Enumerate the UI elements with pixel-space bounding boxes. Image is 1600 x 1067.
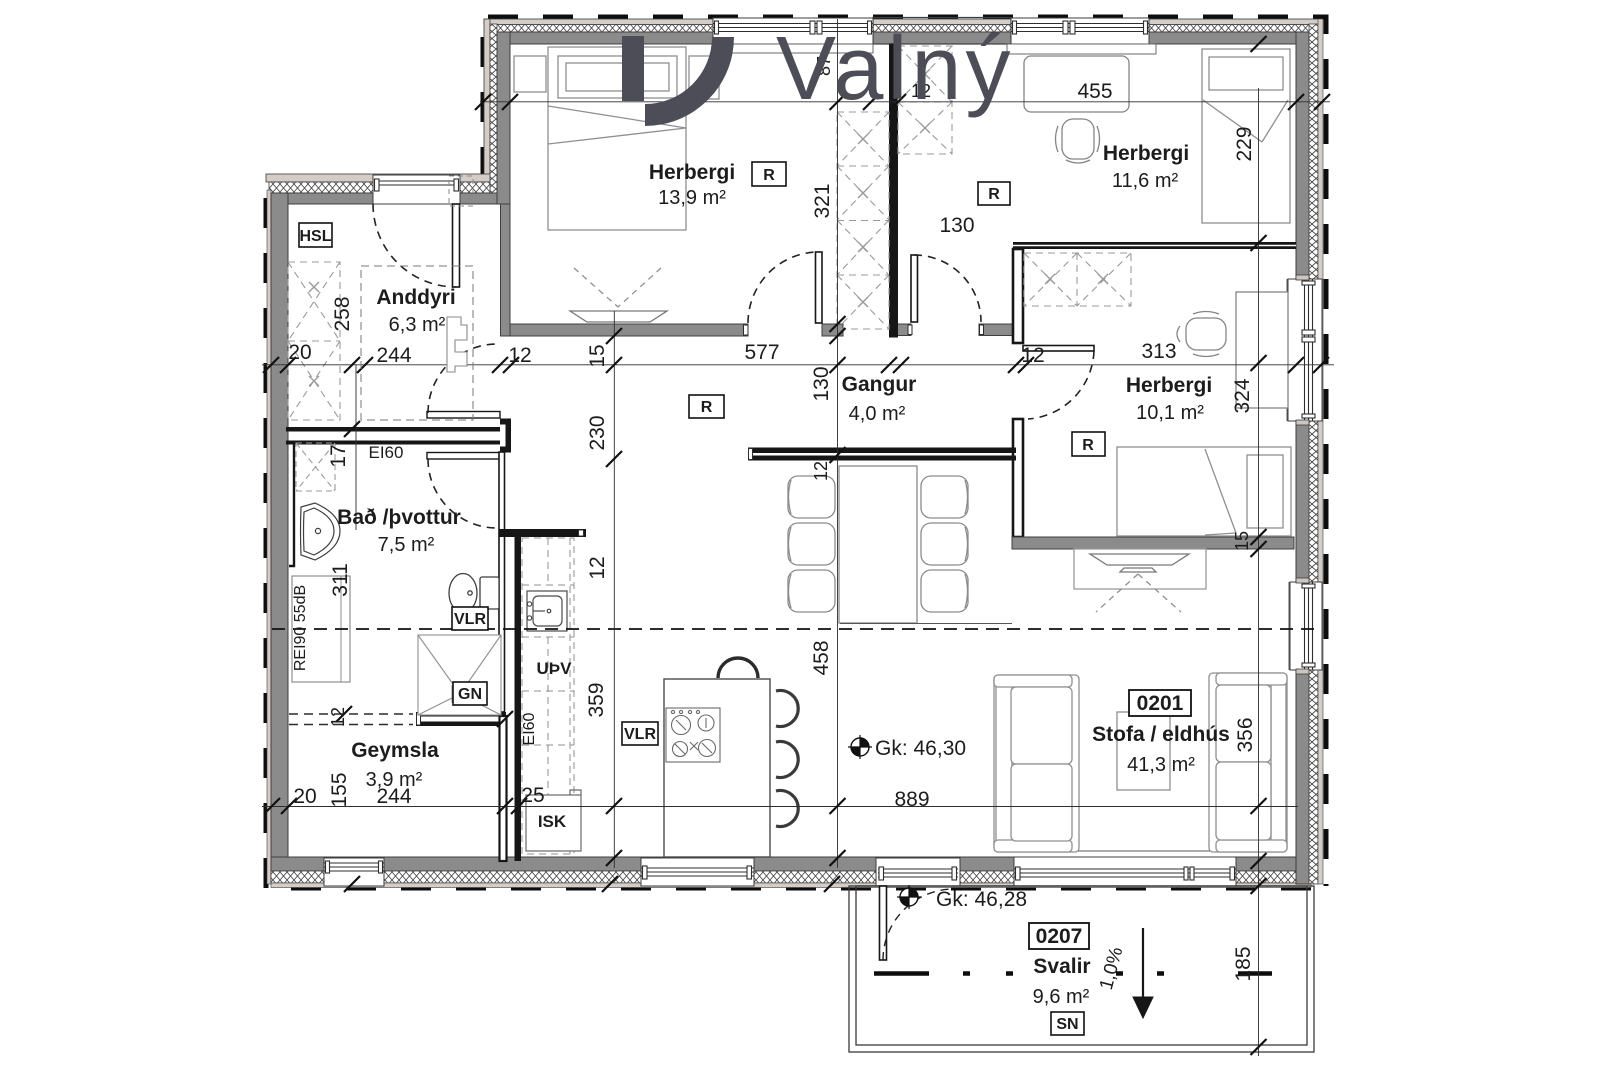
svg-text:244: 244 <box>376 785 411 808</box>
svg-text:ISK: ISK <box>538 812 567 831</box>
svg-text:313: 313 <box>1141 340 1176 363</box>
svg-text:577: 577 <box>744 341 779 364</box>
svg-text:12: 12 <box>508 344 531 367</box>
svg-text:Bað /þvottur: Bað /þvottur <box>337 506 461 529</box>
svg-text:VLR: VLR <box>624 726 656 743</box>
svg-text:321: 321 <box>811 183 834 218</box>
svg-text:356: 356 <box>1234 717 1257 752</box>
svg-text:258: 258 <box>331 296 354 331</box>
svg-text:15: 15 <box>586 344 609 367</box>
svg-text:185: 185 <box>1232 946 1255 981</box>
svg-text:17: 17 <box>327 444 350 467</box>
svg-text:R: R <box>701 399 713 416</box>
svg-text:Valný: Valný <box>776 19 1014 119</box>
svg-text:229: 229 <box>1233 126 1256 161</box>
svg-text:359: 359 <box>585 682 608 717</box>
svg-text:12: 12 <box>811 461 831 481</box>
svg-text:130: 130 <box>810 366 833 401</box>
svg-text:11,6 m²: 11,6 m² <box>1112 170 1179 192</box>
svg-text:EI60: EI60 <box>369 443 404 462</box>
svg-text:R: R <box>988 186 1000 203</box>
svg-text:41,3 m²: 41,3 m² <box>1127 754 1195 776</box>
svg-text:0207: 0207 <box>1036 925 1083 948</box>
svg-text:10,1 m²: 10,1 m² <box>1136 402 1204 424</box>
svg-text:15: 15 <box>1232 531 1252 551</box>
svg-text:Anddyri: Anddyri <box>376 286 455 309</box>
svg-text:130: 130 <box>939 214 974 237</box>
svg-text:4,0 m²: 4,0 m² <box>849 403 906 425</box>
svg-text:R: R <box>1082 437 1094 454</box>
svg-text:244: 244 <box>376 344 411 367</box>
svg-text:UÞV: UÞV <box>537 659 573 678</box>
svg-text:VLR: VLR <box>454 611 486 628</box>
svg-text:Geymsla: Geymsla <box>351 739 439 762</box>
svg-text:455: 455 <box>1077 80 1112 103</box>
svg-text:324: 324 <box>1231 378 1254 413</box>
svg-text:Gk: 46,30: Gk: 46,30 <box>875 737 966 760</box>
svg-text:Herbergi: Herbergi <box>1126 374 1212 397</box>
svg-text:20: 20 <box>288 341 311 364</box>
svg-text:12: 12 <box>328 707 348 727</box>
svg-text:R: R <box>763 167 775 184</box>
svg-text:25: 25 <box>521 784 544 807</box>
svg-text:SN: SN <box>1056 1016 1078 1033</box>
svg-text:311: 311 <box>329 563 352 596</box>
svg-text:7,5 m²: 7,5 m² <box>378 534 435 556</box>
svg-text:HSL: HSL <box>300 228 332 245</box>
svg-text:Herbergi: Herbergi <box>1103 142 1189 165</box>
svg-text:Gangur: Gangur <box>842 373 917 396</box>
svg-text:230: 230 <box>586 415 609 450</box>
svg-text:9,6 m²: 9,6 m² <box>1033 986 1090 1008</box>
svg-text:GN: GN <box>458 686 482 703</box>
svg-text:Svalir: Svalir <box>1033 955 1090 978</box>
svg-text:Gk: 46,28: Gk: 46,28 <box>936 888 1027 911</box>
svg-text:20: 20 <box>293 785 316 808</box>
svg-text:155: 155 <box>328 772 351 807</box>
svg-text:12: 12 <box>1021 344 1044 367</box>
svg-text:13,9 m²: 13,9 m² <box>658 187 726 209</box>
svg-text:REI90 55dB: REI90 55dB <box>292 585 309 671</box>
svg-text:Herbergi: Herbergi <box>649 161 735 184</box>
svg-text:458: 458 <box>810 640 833 675</box>
svg-text:Stofa / eldhús: Stofa / eldhús <box>1092 723 1230 746</box>
svg-text:0201: 0201 <box>1137 692 1184 715</box>
svg-text:EI60: EI60 <box>521 712 538 745</box>
svg-text:6,3 m²: 6,3 m² <box>389 314 446 336</box>
svg-text:12: 12 <box>586 556 609 579</box>
svg-text:889: 889 <box>894 788 929 811</box>
